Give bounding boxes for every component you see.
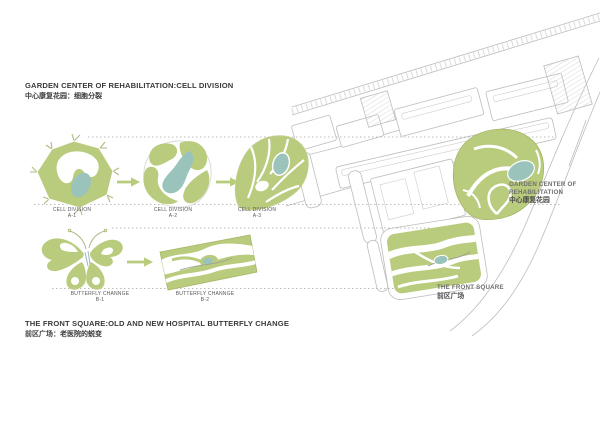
step-label-b1: BUTTERFLY CHANNGE B-1: [71, 291, 130, 303]
cell-a1-diagram: [30, 134, 119, 215]
cell-a3-diagram: [235, 136, 308, 210]
front-square-map-label-en: THE FRONT SQUARE: [437, 284, 504, 292]
arrow-right-icon: [127, 257, 153, 266]
arrow-b1-b2: [127, 257, 153, 266]
garden-map-label-zh: 中心康复花园: [509, 196, 576, 205]
cell-division-section-subtitle-zh: 中心康复花园：细胞分裂: [25, 91, 102, 101]
step-label-b2: BUTTERFLY CHANNGE B-2: [176, 291, 235, 303]
step-code: B-2: [176, 297, 235, 303]
step-code: A-1: [53, 213, 91, 219]
garden-area-plan: [453, 129, 543, 220]
step-code: A-2: [154, 213, 192, 219]
garden-map-label: GARDEN CENTER OF REHABILITATION 中心康复花园: [509, 181, 576, 205]
concept-diagram-page: GARDEN CENTER OF REHABILITATION:CELL DIV…: [0, 0, 600, 424]
arrow-right-icon: [117, 177, 140, 186]
cell-division-section-title: GARDEN CENTER OF REHABILITATION:CELL DIV…: [25, 81, 233, 90]
step-code: A-3: [238, 213, 276, 219]
front-square-map-label-zh: 前区广场: [437, 292, 504, 301]
butterfly-diagram: [42, 229, 123, 289]
front-square-plan-diagram: [158, 235, 258, 290]
step-code: B-1: [71, 297, 130, 303]
step-label-a2: CELL DIVISION A-2: [154, 207, 192, 219]
front-square-section-subtitle-zh: 前区广场：老医院的蜕变: [25, 329, 102, 339]
arrow-a1-a2: [117, 177, 140, 186]
garden-map-label-en-2: REHABILITATION: [509, 189, 576, 197]
step-label-a3: CELL DIVISION A-3: [238, 207, 276, 219]
front-square-section-title: THE FRONT SQUARE:OLD AND NEW HOSPITAL BU…: [25, 319, 289, 328]
cell-a2-diagram: [143, 141, 211, 207]
garden-map-label-en-1: GARDEN CENTER OF: [509, 181, 576, 189]
step-label-a1: CELL DIVISION A-1: [53, 207, 91, 219]
front-square-map-label: THE FRONT SQUARE 前区广场: [437, 284, 504, 301]
